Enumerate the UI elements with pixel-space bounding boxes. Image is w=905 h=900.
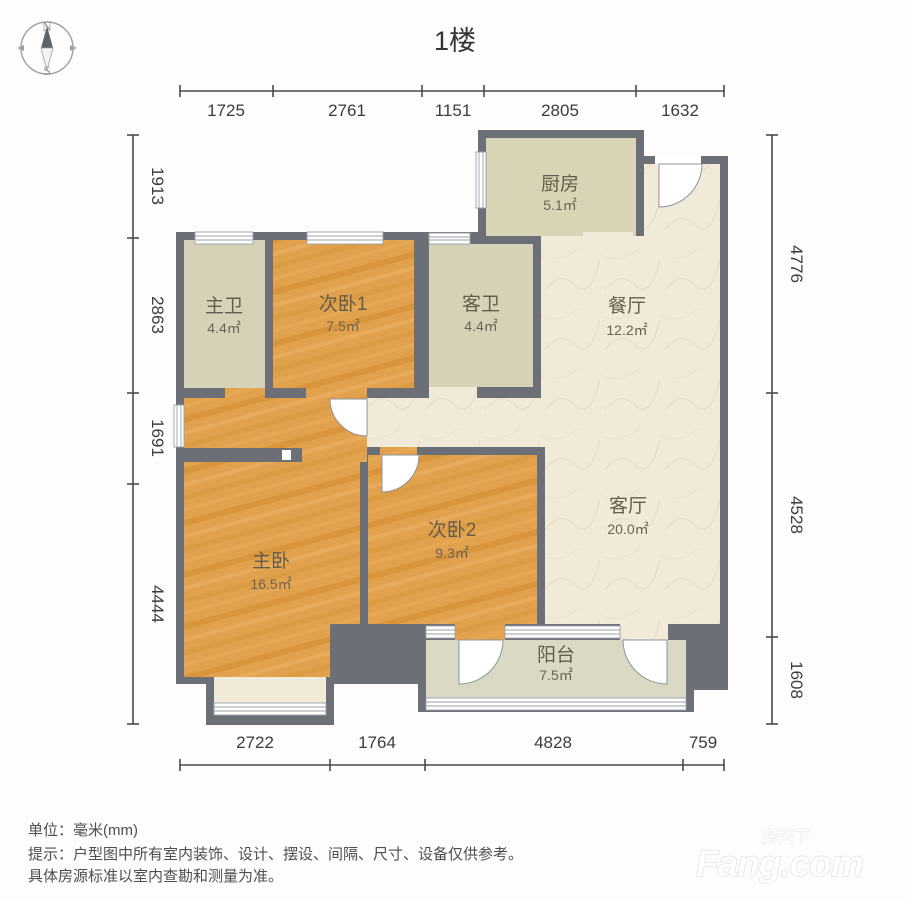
room-area-kitchen: 5.1㎡ bbox=[543, 197, 576, 213]
watermark-en: Fang.com bbox=[696, 843, 863, 884]
opening-balcony-left-door bbox=[455, 624, 505, 640]
room-label-bedroom2: 次卧2 bbox=[428, 519, 477, 541]
room-area-master: 16.5㎡ bbox=[250, 576, 291, 592]
footer-note-line1: 提示：户型图中所有室内装饰、设计、摆设、间隔、尺寸、设备仅供参考。 bbox=[28, 846, 523, 863]
dim-left-0: 1913 bbox=[148, 167, 167, 205]
dim-left-2: 1691 bbox=[148, 419, 167, 457]
window-bedroom1-top bbox=[307, 232, 383, 244]
wall-notch bbox=[282, 450, 291, 460]
room-label-master-bath: 主卫 bbox=[205, 295, 243, 317]
room-area-living: 20.0㎡ bbox=[607, 521, 648, 537]
room-label-dining: 餐厅 bbox=[608, 295, 646, 317]
compass-north-label: N bbox=[42, 19, 52, 34]
dim-bottom-0: 2722 bbox=[236, 733, 274, 752]
page-title: 1楼 bbox=[434, 26, 476, 56]
room-area-guest-bath: 4.4㎡ bbox=[464, 318, 497, 334]
dim-top-2: 1151 bbox=[435, 101, 472, 120]
floor-baywindow bbox=[214, 677, 326, 703]
footer-note-line2: 具体房源标准以室内查勘和测量为准。 bbox=[28, 868, 283, 885]
watermark: 房天下 Fang.com bbox=[696, 827, 863, 884]
compass-icon: N S bbox=[17, 19, 77, 78]
footer-notes: 单位：毫米(mm) 提示：户型图中所有室内装饰、设计、摆设、间隔、尺寸、设备仅供… bbox=[28, 821, 523, 885]
floor-guest-bath bbox=[429, 244, 533, 387]
window-baywindow-bottom bbox=[214, 703, 326, 715]
room-area-master-bath: 4.4㎡ bbox=[207, 320, 240, 336]
room-label-living: 客厅 bbox=[609, 495, 647, 517]
room-label-guest-bath: 客卫 bbox=[462, 293, 500, 315]
dim-top-0: 1725 bbox=[207, 101, 245, 120]
floor-hall bbox=[367, 398, 545, 447]
opening-bedroom2-door bbox=[380, 447, 417, 455]
opening-guest-bath-door bbox=[429, 387, 477, 398]
dim-top-4: 1632 bbox=[661, 101, 699, 120]
window-balcony-left-sill bbox=[426, 626, 455, 638]
floor-dining bbox=[541, 236, 720, 447]
floor-master-upper bbox=[184, 462, 360, 624]
room-label-balcony: 阳台 bbox=[537, 644, 575, 666]
window-master-bath-top bbox=[195, 232, 253, 244]
dim-top-3: 2805 bbox=[541, 101, 579, 120]
floorplan-page: 1725 2761 1151 2805 1632 2722 1764 4828 … bbox=[0, 0, 905, 900]
floorplan-canvas: 1725 2761 1151 2805 1632 2722 1764 4828 … bbox=[0, 0, 905, 900]
dim-right-1: 4528 bbox=[787, 496, 806, 534]
dim-right-2: 1608 bbox=[787, 661, 806, 699]
dim-bottom-1: 1764 bbox=[358, 733, 396, 752]
dim-left-3: 4444 bbox=[148, 585, 167, 623]
opening-kitchen bbox=[583, 232, 633, 244]
window-balcony-bottom bbox=[426, 698, 686, 710]
room-area-dining: 12.2㎡ bbox=[606, 322, 647, 338]
dim-bottom-2: 4828 bbox=[534, 733, 572, 752]
compass-south-label: S bbox=[43, 63, 50, 78]
dim-bottom-3: 759 bbox=[689, 733, 717, 752]
window-balcony-mid-sill bbox=[505, 626, 620, 638]
dim-left-1: 2863 bbox=[148, 296, 167, 334]
footer-unit-line: 单位：毫米(mm) bbox=[28, 821, 138, 839]
opening-entry-door bbox=[655, 156, 701, 164]
room-area-bedroom2: 9.3㎡ bbox=[435, 545, 468, 561]
opening-master-bath-door bbox=[225, 388, 265, 398]
opening-balcony-right-door bbox=[620, 624, 668, 640]
room-label-bedroom1: 次卧1 bbox=[319, 293, 368, 315]
window-guest-bath-top bbox=[429, 233, 470, 244]
window-master-left bbox=[174, 405, 184, 447]
room-label-kitchen: 厨房 bbox=[541, 173, 579, 195]
dim-top-1: 2761 bbox=[328, 101, 366, 120]
room-area-balcony: 7.5㎡ bbox=[539, 667, 572, 683]
room-label-master: 主卧 bbox=[252, 550, 290, 572]
room-area-bedroom1: 7.5㎡ bbox=[326, 318, 359, 334]
floor-master-lower bbox=[184, 624, 330, 677]
window-kitchen-left bbox=[476, 152, 486, 208]
dim-right-0: 4776 bbox=[787, 245, 806, 283]
